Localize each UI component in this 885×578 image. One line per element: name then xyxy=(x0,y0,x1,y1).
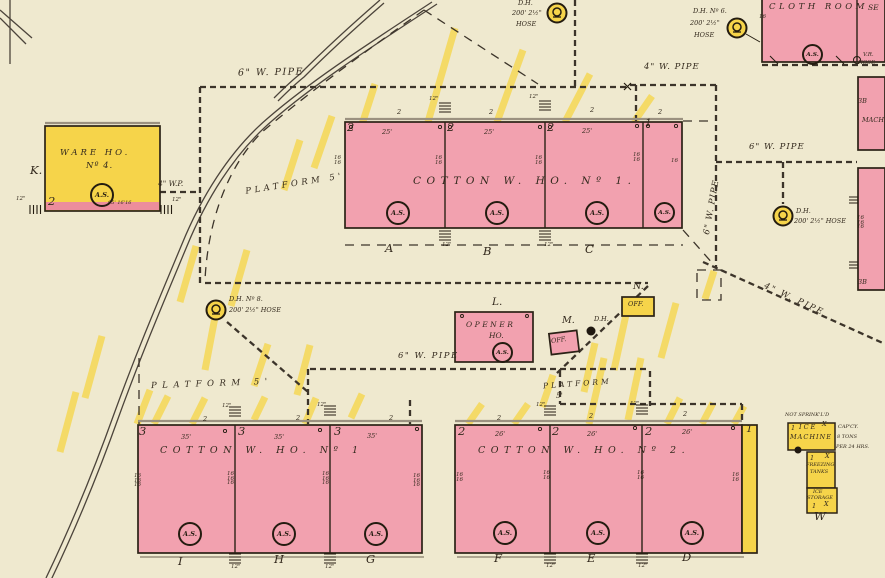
ware-house-stories: 2 xyxy=(48,196,55,208)
sprinkler-badge-br-f: A.S. xyxy=(493,521,517,545)
sprinkler-badge-top-c: A.S. xyxy=(585,201,609,225)
cotton-bl-fire12-t2: 12" xyxy=(317,403,327,409)
cotton-br-wall16-left: 16 16 xyxy=(455,473,464,482)
cotton-top-fire12-t2: 12" xyxy=(529,95,539,101)
cotton-br-wall16-1: 16 16 xyxy=(542,471,551,480)
hydrant-right-name: D.H. xyxy=(796,208,811,215)
cotton-br-dim-d: 26' xyxy=(682,429,692,436)
hydrant-right-hose: 200' 2½" HOSE xyxy=(794,218,846,225)
right-edge-3b-top: 3B xyxy=(858,98,867,105)
cotton-bl-wall16-2: 16 16 16 xyxy=(321,472,330,486)
double-hydrant-right-icon xyxy=(774,207,793,226)
cotton-top-roof-mark-1: 2 xyxy=(397,109,401,116)
ware-firewall-label-right: 12" xyxy=(172,198,182,204)
sprinkler-badge-top-d: A.S. xyxy=(654,202,675,223)
cotton-br-wall16-right: 16 16 xyxy=(731,473,740,482)
cotton-br-dim-e: 26' xyxy=(587,431,597,438)
cotton-br-fire12-b2: 12" xyxy=(638,564,648,570)
cotton-bl-fire12-t1: 12" xyxy=(222,404,232,410)
pipe-label-4wp-ware: 4" W.P. xyxy=(158,180,183,188)
sprinkler-badge-bl-g: A.S. xyxy=(364,522,388,546)
cotton-top-wall16-right: 16 xyxy=(671,159,678,165)
ice-storage-name-2: STORAGE xyxy=(807,496,833,501)
cotton-bl-wall16-1: 16 16 16 xyxy=(226,472,235,486)
cotton-br-yellow-section xyxy=(742,425,757,553)
pipe-label-6w-center: 6" W. PIPE xyxy=(398,352,459,361)
cotton-top-stories-1: 2 xyxy=(347,122,354,134)
cotton-top-roof-mark-4: 2 xyxy=(658,109,662,116)
cotton-br-stories-4: 1 xyxy=(746,424,753,435)
cotton-br-name: COTTON W. HO. Nº 2. xyxy=(478,446,690,456)
cotton-top-fire12-b1: 12" xyxy=(442,243,452,249)
cotton-br-fire12-t1: 12" xyxy=(536,403,546,409)
cotton-br-dim-f: 26' xyxy=(495,431,505,438)
cotton-bl-dim-h: 35' xyxy=(274,434,284,441)
opener-name-2: HO. xyxy=(489,332,504,340)
valve-dot-icon xyxy=(795,447,802,454)
office-n-letter: N. xyxy=(633,282,644,292)
ice-machine-name-2: MACHINE xyxy=(790,434,832,441)
platform-mid-dim: 5' xyxy=(556,392,563,400)
office-n-name: OFF. xyxy=(628,301,643,308)
section-letter-d: D xyxy=(682,552,691,564)
cotton-top-wall16-3: 16 16 xyxy=(632,153,641,162)
cotton-br-roof-mark-2: 2 xyxy=(589,413,593,420)
ice-not-sprinkled-note: NOT SPRINK'L'D xyxy=(785,413,829,418)
ice-capacity-2: 8 TONS xyxy=(837,435,857,440)
freezing-tanks-name-1: FREEZING xyxy=(806,463,834,468)
ware-firewall-label-left: 12" xyxy=(16,197,26,203)
cotton-top-wall16-1: 16 16 xyxy=(434,156,443,165)
hydrant-dot-icon xyxy=(587,327,596,336)
cotton-bl-name: COTTON W. HO. Nº 1 xyxy=(160,446,364,456)
sprinkler-badge-ware: A.S. xyxy=(90,183,114,207)
section-letter-g: G xyxy=(366,554,375,566)
cotton-top-dim-a: 25' xyxy=(382,129,392,136)
vr-label: V.R. xyxy=(863,53,874,59)
cotton-br-roof-mark-1: 2 xyxy=(497,415,501,422)
right-edge-building-upper xyxy=(858,77,885,150)
cotton-br-roof-mark-3: 2 xyxy=(683,411,687,418)
cotton-bl-dim-i: 35' xyxy=(181,434,191,441)
rail-spur xyxy=(0,10,32,44)
ware-house-name: WARE HO. xyxy=(60,149,130,158)
section-letter-h: H xyxy=(274,554,284,566)
ware-house-letter: K. xyxy=(30,165,42,177)
map-graphics xyxy=(0,0,885,578)
double-hydrant-no6-icon xyxy=(728,19,747,38)
hydrant-no6-hose1: 200' 2½" xyxy=(690,20,720,27)
cotton-br-wall16-2: 16 16 xyxy=(636,471,645,480)
section-letter-f: F xyxy=(494,553,502,565)
freezing-tanks-x: X xyxy=(825,453,830,460)
pipe-label-6w-top: 6" W. PIPE xyxy=(238,67,304,78)
cotton-bl-dim-g: 35' xyxy=(367,433,377,440)
hydrant-no6-name: D.H. Nº 6. xyxy=(693,8,727,15)
cotton-bl-stories-3: 3 xyxy=(334,426,341,438)
section-letter-i: I xyxy=(178,556,183,568)
cotton-top-stories-4: 1 xyxy=(645,118,652,129)
office-m-letter: M. xyxy=(562,316,575,326)
sprinkler-badge-opener: A.S. xyxy=(492,342,513,363)
cotton-top-stories-3: 2 xyxy=(547,122,554,134)
cotton-bl-stories-1: 3 xyxy=(139,426,146,438)
section-letter-a: A xyxy=(385,243,393,255)
cotton-bl-fire12-b1: 12" xyxy=(231,565,241,571)
cloth-room-name: CLOTH ROOM xyxy=(769,3,868,12)
cotton-br-fire12-t2: 12" xyxy=(630,402,640,408)
cotton-br-fire12-b1: 12" xyxy=(546,564,556,570)
ice-machine-stories: 1 xyxy=(791,425,795,432)
ice-machine-x: X xyxy=(822,421,827,428)
sprinkler-badge-br-e: A.S. xyxy=(586,521,610,545)
cotton-bl-roof-mark-1: 2 xyxy=(203,416,207,423)
vr-hose-label: HOSE xyxy=(858,61,875,67)
cotton-bl-wall16-right: 16 16 16 xyxy=(412,474,421,488)
right-edge-mach-label: MACH xyxy=(862,117,884,124)
cotton-bl-stories-2: 3 xyxy=(238,426,245,438)
cotton-br-stories-1: 2 xyxy=(458,426,465,438)
ice-plant-letter: W xyxy=(814,511,826,523)
cotton-bl-roof-mark-3: 2 xyxy=(389,415,393,422)
cotton-bl-wall16-left: 16 16 16 xyxy=(133,474,142,488)
pipe-label-6w-right: 6" W. PIPE xyxy=(749,143,805,152)
opener-letter: L. xyxy=(492,297,502,308)
sprinkler-badge-cloth: A.S. xyxy=(802,44,823,65)
double-hydrant-no8-icon xyxy=(207,301,226,320)
freezing-tanks-name-2: TANKS xyxy=(810,470,828,475)
cotton-br-stories-3: 2 xyxy=(645,426,652,438)
sprinkler-badge-bl-h: A.S. xyxy=(272,522,296,546)
double-hydrant-top-icon xyxy=(548,4,567,23)
ice-capacity-1: CAP'CY. xyxy=(838,425,858,430)
hydrant-no6-hose2: HOSE xyxy=(694,32,714,39)
hydrant-small-name: D.H. xyxy=(594,316,609,323)
hydrant-top-hose1: 200' 2½" xyxy=(512,10,542,17)
cotton-top-dim-b: 25' xyxy=(484,129,494,136)
hydrant-no8-hose: 200' 2½" HOSE xyxy=(229,307,281,314)
section-letter-c: C xyxy=(585,244,594,256)
hydrant-top-name: D.H. xyxy=(518,0,533,7)
hose-tick xyxy=(746,34,760,42)
sprinkler-badge-top-b: A.S. xyxy=(485,201,509,225)
cloth-room-wall16: 16 xyxy=(759,15,766,21)
section-letter-b: B xyxy=(483,246,491,258)
sprinkler-badge-top-a: A.S. xyxy=(386,201,410,225)
cotton-bl-fire12-b2: 12" xyxy=(325,565,335,571)
cotton-top-fire12-t1: 12" xyxy=(429,97,439,103)
cotton-top-stories-2: 2 xyxy=(447,122,454,134)
cotton-top-fire12-b2: 12" xyxy=(544,243,554,249)
cotton-bl-roof-mark-2: 2 xyxy=(296,415,300,422)
hydrant-no8-name: D.H. Nº 8. xyxy=(229,296,263,303)
ware-house-number: Nº 4. xyxy=(86,162,113,171)
ice-machine-name-1: ICE xyxy=(799,424,817,431)
pipe-label-4w-top: 4" W. PIPE xyxy=(644,63,700,72)
cotton-top-wall16-2: 16 16 xyxy=(534,156,543,165)
cotton-top-roof-mark-2: 2 xyxy=(489,109,493,116)
right-edge-3b-bottom: 3B xyxy=(858,279,867,286)
hydrant-top-hose2: HOSE xyxy=(516,21,536,28)
cotton-top-dim-c: 25' xyxy=(582,128,592,135)
cotton-top-name: COTTON W. HO. Nº 1. xyxy=(413,176,636,187)
freezing-tanks-stories: 1 xyxy=(810,455,814,462)
sprinkler-badge-br-d: A.S. xyxy=(680,521,704,545)
section-letter-e: E xyxy=(587,553,595,565)
building-shapes xyxy=(45,0,885,557)
cotton-br-stories-2: 2 xyxy=(552,426,559,438)
cloth-room-edge-label: SE xyxy=(868,4,879,12)
ice-capacity-3: PER 24 HRS. xyxy=(836,445,869,450)
sanborn-map: K. WARE HO. Nº 4. 2 95' 16'16 12" 12" A.… xyxy=(0,0,885,578)
cotton-top-wall16-left: 16 16 xyxy=(333,156,342,165)
opener-name-1: OPENER xyxy=(466,321,515,329)
cotton-top-roof-mark-3: 2 xyxy=(590,107,594,114)
sprinkler-badge-bl-i: A.S. xyxy=(178,522,202,546)
right-edge-wall16: 16 16 16 xyxy=(856,216,865,230)
ice-storage-x: X xyxy=(824,501,829,508)
